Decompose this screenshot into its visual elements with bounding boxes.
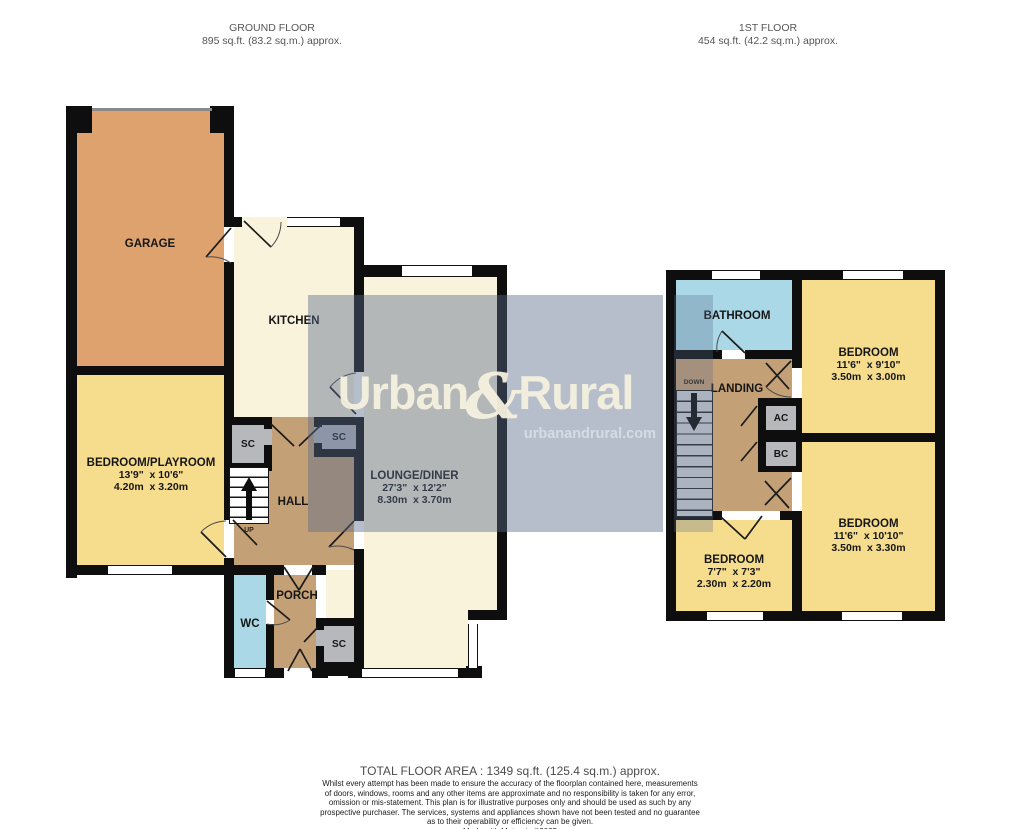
watermark-brand: Urban&Rural [308,369,663,420]
first-floor-area: 454 sq.ft. (42.2 sq.m.) approx. [698,35,838,47]
disclaimer-line: omission or mis-statement. This plan is … [0,798,1020,808]
label-bedroom-playroom: BEDROOM/PLAYROOM 13'9" x 10'6" 4.20m x 3… [70,457,232,493]
window [842,611,902,621]
window [402,265,472,277]
label-garage: GARAGE [75,238,225,251]
disclaimer-line: prospective purchaser. The services, sys… [0,808,1020,818]
room-lounge-diner-lower [364,610,468,668]
total-floor-area: TOTAL FLOOR AREA : 1349 sq.ft. (125.4 sq… [0,764,1020,779]
closet-bc: BC [766,442,796,466]
label-porch: PORCH [267,590,327,603]
closet-label: SC [241,439,255,450]
wall [780,511,802,520]
garage-door-line [92,108,212,111]
wall [354,265,402,277]
window [468,624,478,668]
room-porch [274,575,316,668]
label-bedroom-front: BEDROOM 11'6" x 9'10" 3.50m x 3.00m [800,347,937,383]
wall [66,366,234,375]
watermark-ampersand: & [465,359,521,433]
label-up: UP [229,527,269,534]
wall [266,668,284,678]
wall [935,270,945,621]
footer: TOTAL FLOOR AREA : 1349 sq.ft. (125.4 sq… [0,764,1020,829]
wall [745,350,802,359]
disclaimer-line: Whilst every attempt has been made to en… [0,779,1020,789]
floorplan-canvas: GROUND FLOOR 895 sq.ft. (83.2 sq.m.) app… [0,0,1020,829]
up-arrow [246,490,252,520]
window [108,565,172,575]
window [707,611,763,621]
closet-opening [316,630,324,646]
window [362,668,458,678]
first-floor-title: 1ST FLOOR [739,22,797,34]
label-bedroom-small: BEDROOM 7'7" x 7'3" 2.30m x 2.20m [676,554,792,590]
watermark-website: urbanandrural.com [524,426,656,442]
up-arrow-head [241,477,257,491]
window [712,270,760,280]
closet-label: SC [332,639,346,650]
window [235,668,265,678]
window [843,270,903,280]
ground-floor-title: GROUND FLOOR [229,22,315,34]
ground-floor-header: GROUND FLOOR 895 sq.ft. (83.2 sq.m.) app… [122,22,422,47]
disclaimer-line: of doors, windows, rooms and any other i… [0,789,1020,799]
label-bedroom-rear: BEDROOM 11'6" x 10'10" 3.50m x 3.30m [800,518,937,554]
closet-label: AC [774,413,788,424]
wall [468,610,507,620]
watermark-brand-right: Rural [518,366,633,419]
wall [266,565,284,575]
window [287,217,340,227]
wall [312,565,326,575]
ground-floor-area: 895 sq.ft. (83.2 sq.m.) approx. [202,35,342,47]
watermark-shade [674,295,713,532]
closet-label: BC [774,449,788,460]
label-wc: WC [230,618,270,631]
disclaimer-line: as to their operability or efficiency ca… [0,817,1020,827]
wall [224,106,234,227]
closet-opening [262,429,272,445]
wall [66,106,77,578]
closet-sc-hall-left: SC [232,425,264,463]
wall [666,270,945,280]
watermark-banner: Urban&Rural urbanandrural.com [308,295,663,532]
watermark-brand-left: Urban [338,366,469,419]
room-lounge-pocket [326,570,354,618]
closet-sc-porch: SC [324,626,354,662]
wall [800,433,945,442]
door-opening [242,217,288,227]
first-floor-header: 1ST FLOOR 454 sq.ft. (42.2 sq.m.) approx… [618,22,918,47]
closet-ac: AC [766,406,796,430]
